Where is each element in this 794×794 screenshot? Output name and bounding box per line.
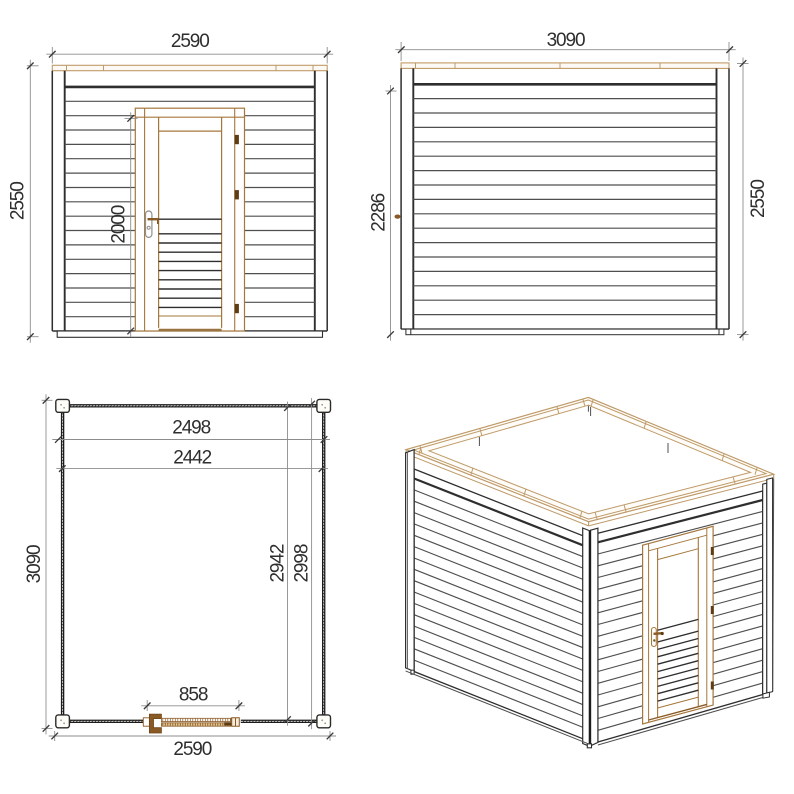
svg-text:2550: 2550: [8, 182, 29, 220]
svg-text:2286: 2286: [369, 193, 390, 231]
svg-text:3090: 3090: [547, 30, 585, 51]
svg-text:2442: 2442: [173, 448, 211, 469]
svg-text:2498: 2498: [172, 418, 210, 439]
svg-text:2590: 2590: [173, 739, 211, 760]
svg-text:2000: 2000: [108, 205, 129, 243]
svg-text:858: 858: [179, 684, 208, 705]
svg-text:2550: 2550: [748, 180, 769, 218]
svg-text:3090: 3090: [24, 545, 45, 583]
svg-text:2998: 2998: [291, 544, 312, 582]
svg-text:2590: 2590: [171, 31, 209, 52]
svg-text:2942: 2942: [268, 544, 289, 582]
